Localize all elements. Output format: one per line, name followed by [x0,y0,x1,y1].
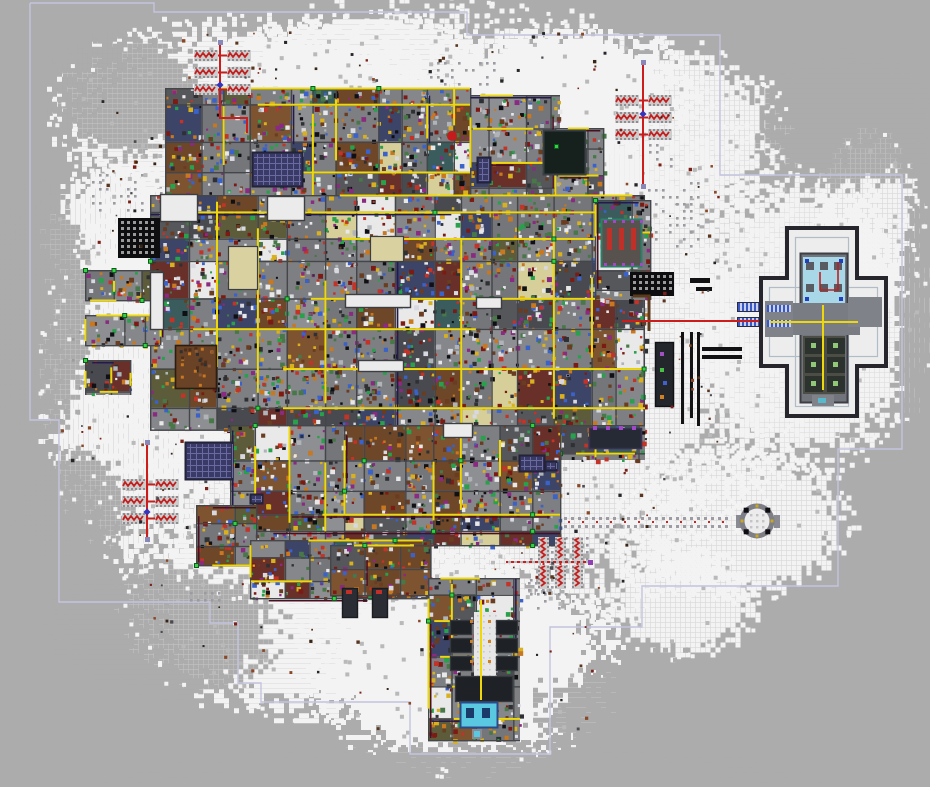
power-plant-strip[interactable] [428,578,523,743]
ruin-circle[interactable] [735,499,781,543]
ancient-compound[interactable] [762,226,884,416]
trap-cluster-south[interactable] [534,533,588,593]
trap-cluster-west[interactable] [119,475,181,533]
solar-array-north[interactable] [252,150,304,188]
game-map-view [0,0,930,787]
solar-array-west[interactable] [185,441,235,481]
trap-cluster-northwest[interactable] [192,42,254,104]
trap-cluster-northeast[interactable] [613,90,673,148]
